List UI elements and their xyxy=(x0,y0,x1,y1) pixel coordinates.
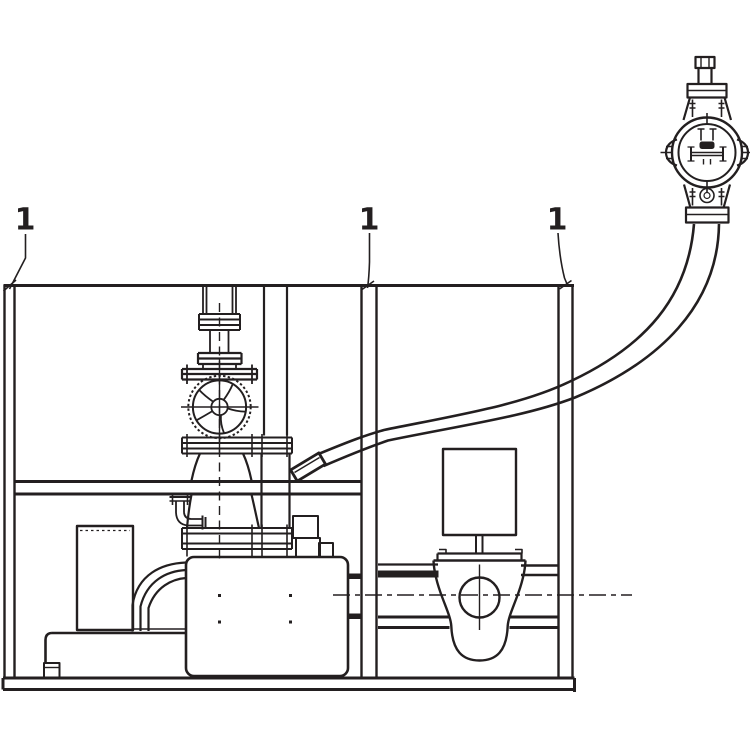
valve-body-cone xyxy=(187,454,259,529)
pedestal-foot xyxy=(44,663,60,678)
tank xyxy=(77,526,133,630)
coupling-collar-lines xyxy=(701,57,709,68)
motor-shaft xyxy=(476,535,483,553)
valve-bottom-flange xyxy=(182,438,292,454)
junction-box-tall xyxy=(293,516,318,538)
hose-connector xyxy=(291,453,326,481)
main-pump-body xyxy=(186,557,348,676)
cam-glyph-bars xyxy=(691,153,723,165)
coupling-top-pipe xyxy=(699,68,712,84)
discharge-pipe xyxy=(378,617,558,628)
hose-assembly xyxy=(291,224,719,481)
frame-mid-rail xyxy=(16,482,361,495)
motor-box xyxy=(443,449,516,535)
main-pump-side-stubs xyxy=(348,574,362,620)
discharge-riser-walls xyxy=(262,287,290,528)
callout-left-leader xyxy=(4,234,26,291)
cam-glyph-serifs xyxy=(688,147,727,161)
pedestal-platform xyxy=(46,633,187,663)
base-plate xyxy=(3,678,575,692)
callout-center-leader xyxy=(362,233,374,290)
cam-glyph-bracket xyxy=(698,129,717,141)
callout-right-leader xyxy=(558,233,572,289)
discharge-riser xyxy=(262,287,290,528)
cam-glyph-ends xyxy=(691,147,723,161)
callout-right-label: 1 xyxy=(547,203,568,238)
callout-left-label: 1 xyxy=(15,203,36,238)
suction-elbow xyxy=(133,563,187,632)
pump-flange-band xyxy=(182,528,292,549)
cam-glyph-blob xyxy=(700,142,715,150)
main-pump-bolt-dots xyxy=(218,594,292,624)
inline-pump-unit xyxy=(378,449,558,661)
junction-box-low xyxy=(296,538,320,557)
coupling-lower-dial-inner xyxy=(704,193,710,199)
suction-pipe-thick-segment xyxy=(378,571,439,578)
pipe-coupling xyxy=(661,57,750,223)
junction-box-small xyxy=(319,543,333,557)
coupling-cam-glyph xyxy=(688,129,727,165)
coupling-top-collar xyxy=(696,57,715,68)
callouts: 1 1 1 xyxy=(4,203,572,292)
hose-line-inner xyxy=(319,224,695,454)
drawing-canvas: 1 1 1 xyxy=(0,0,750,750)
callout-center-label: 1 xyxy=(359,203,380,238)
main-pump xyxy=(44,493,362,678)
pump-unit-drawing: 1 1 1 xyxy=(0,0,750,750)
suction-pipe-right xyxy=(521,566,558,576)
